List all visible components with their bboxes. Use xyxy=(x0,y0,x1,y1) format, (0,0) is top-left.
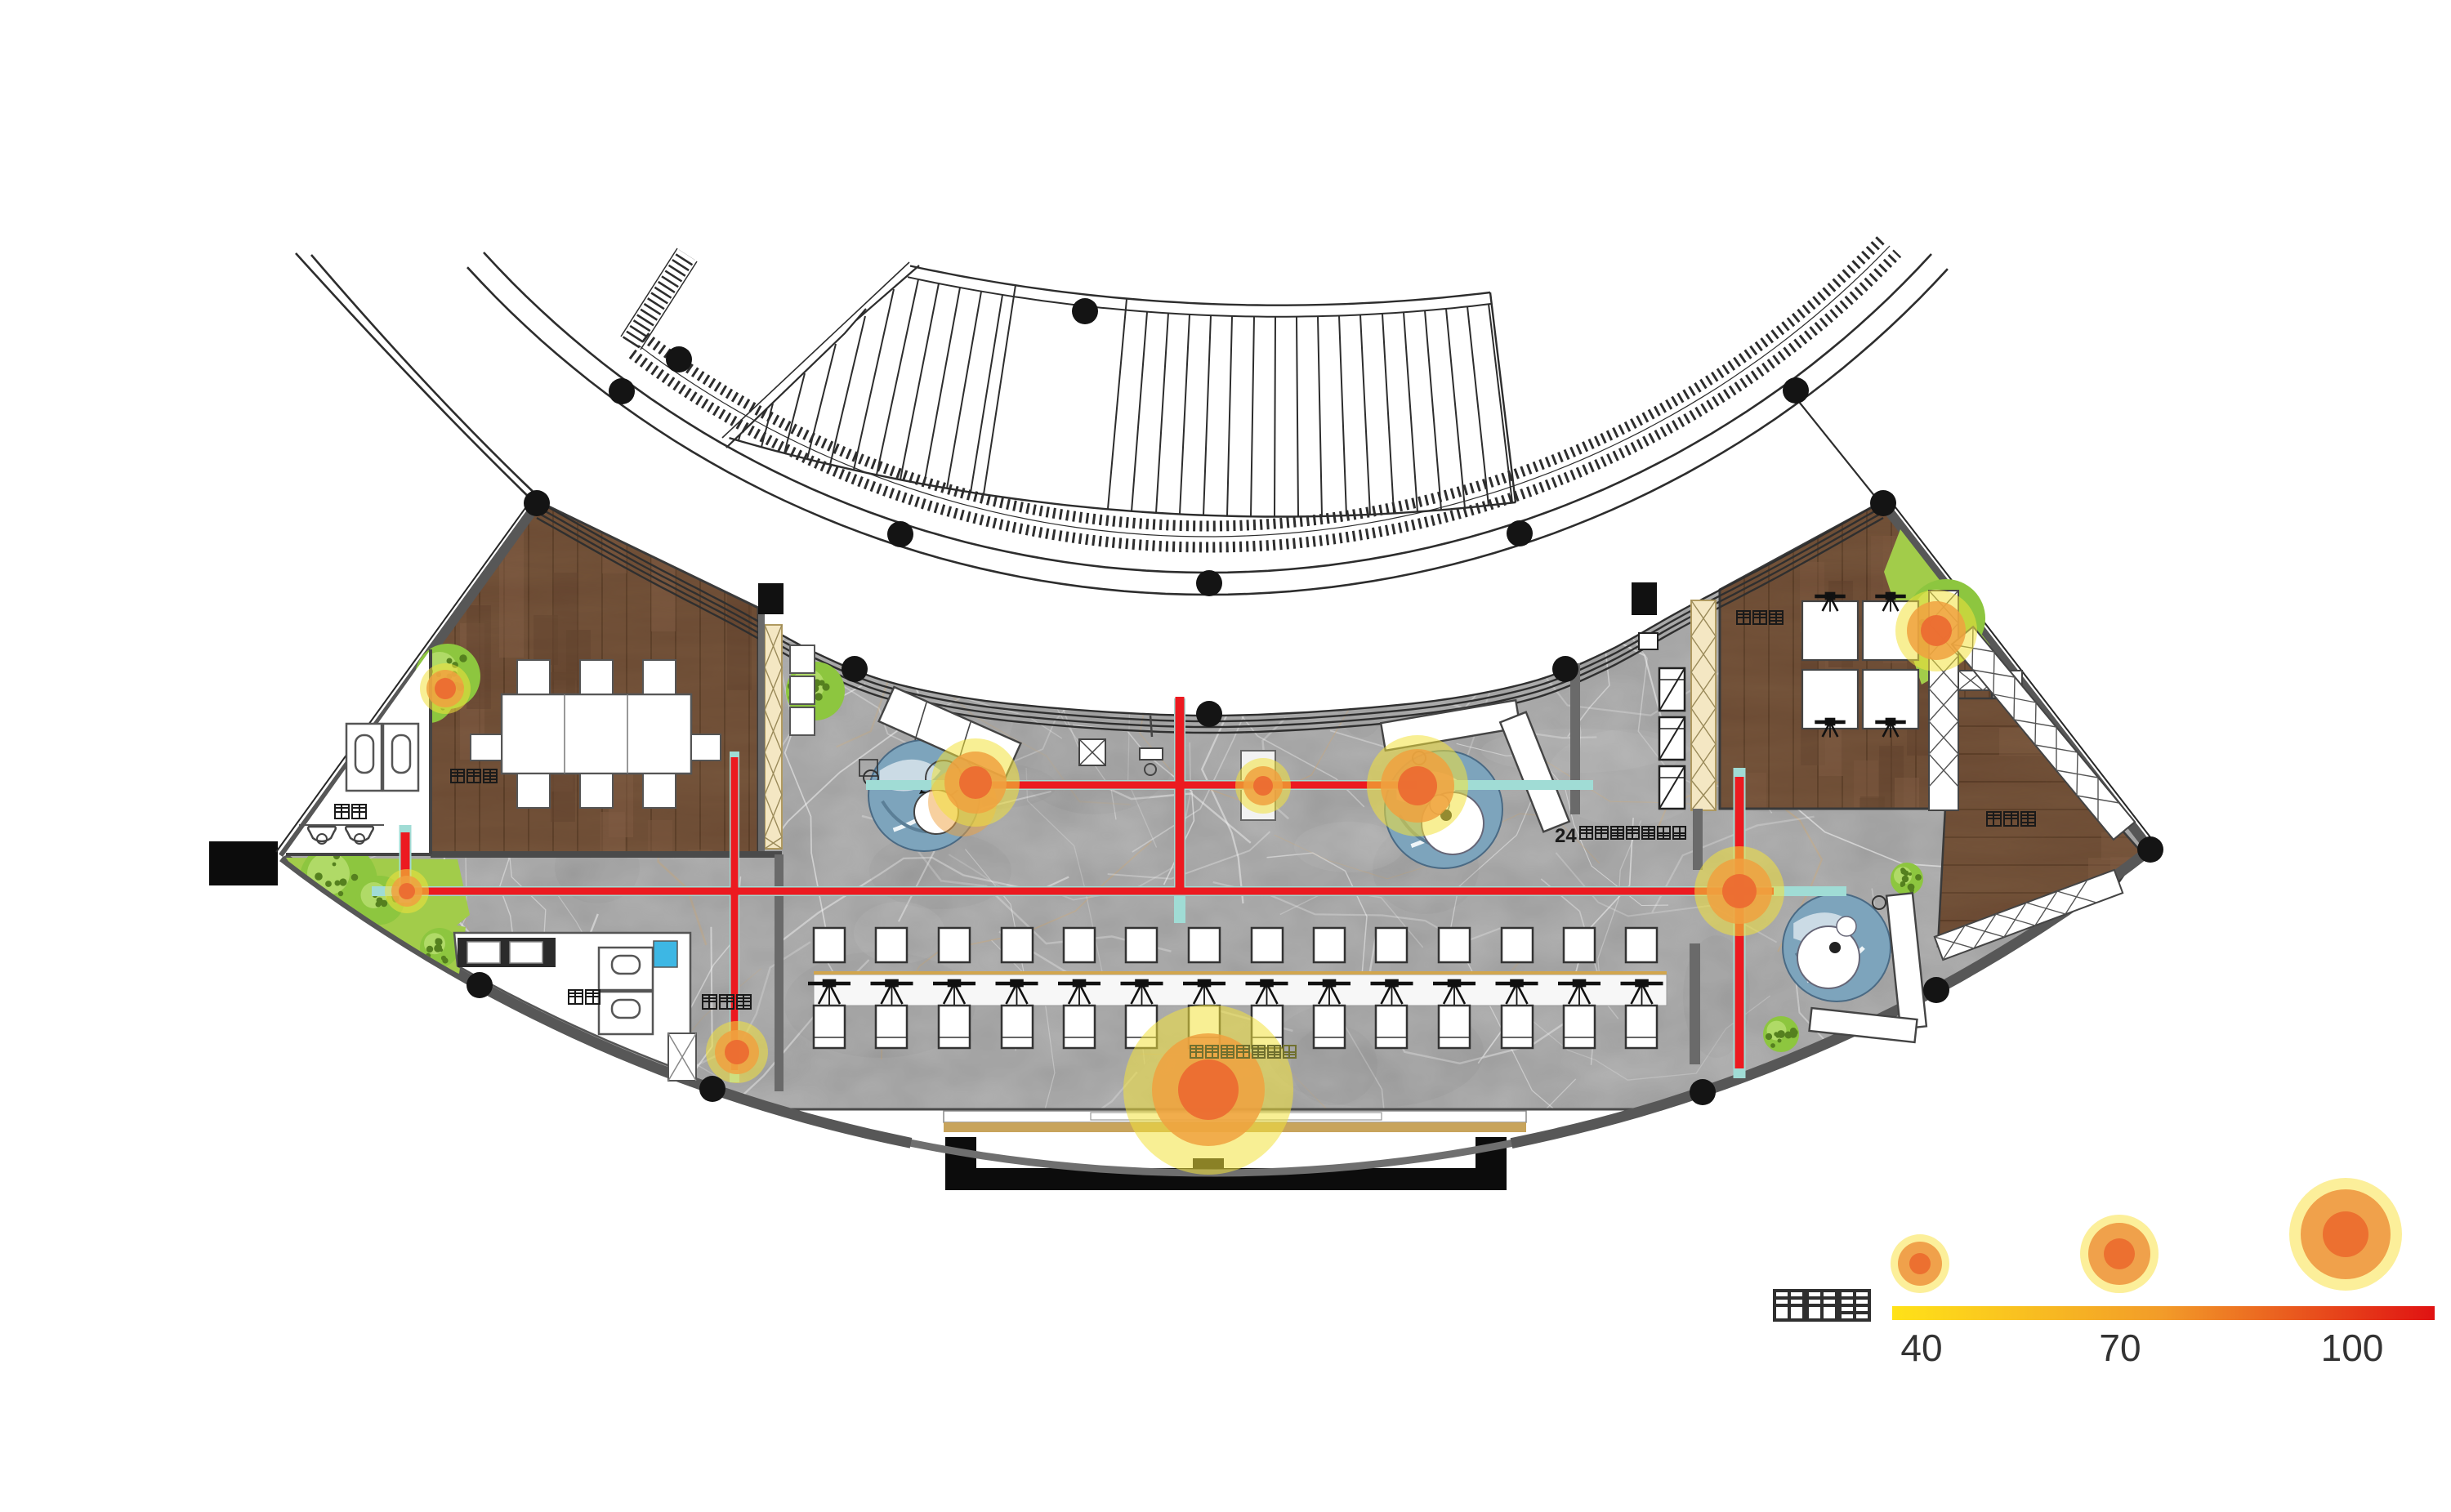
svg-text:100: 100 xyxy=(2321,1327,2384,1369)
svg-text:24: 24 xyxy=(1555,825,1577,847)
svg-text:40: 40 xyxy=(1900,1327,1942,1369)
svg-text:70: 70 xyxy=(2099,1327,2141,1369)
